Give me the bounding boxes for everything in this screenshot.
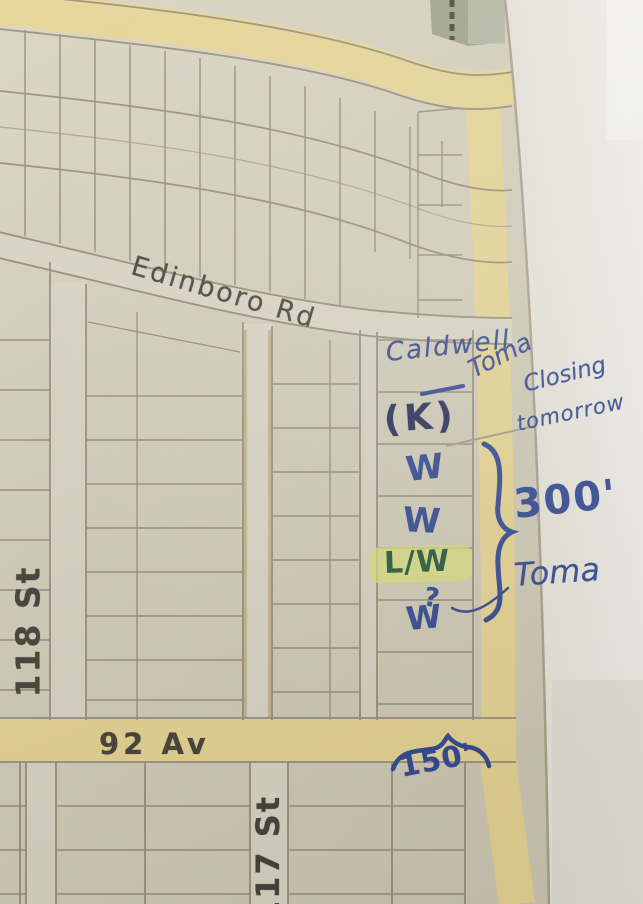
right-road-upper — [482, 92, 498, 722]
street-label-92av: 92 Av — [99, 727, 210, 761]
street-label-118st: 118 St — [9, 557, 48, 707]
bright-paper-strip — [606, 0, 643, 140]
118st-surface — [50, 282, 86, 720]
annotation-lw: L/W — [383, 544, 450, 581]
mid-street-surface — [243, 324, 272, 720]
map-artwork — [0, 0, 643, 904]
map-photo: Edinboro Rd 118 St 92 Av 117 St Caldwell… — [0, 0, 643, 904]
lane-surface — [360, 332, 377, 720]
lower-left-street-surface — [26, 762, 56, 904]
street-label-117st: 117 St — [249, 789, 287, 904]
annotation-toma-bottom: Toma — [513, 550, 601, 594]
right-road-lower — [498, 762, 517, 904]
annotation-w3: W — [404, 597, 442, 638]
annotation-k: (K) — [383, 395, 458, 441]
annotation-w1: W — [404, 446, 445, 490]
annotation-w2: W — [402, 500, 442, 542]
margin-shadow — [552, 680, 643, 904]
